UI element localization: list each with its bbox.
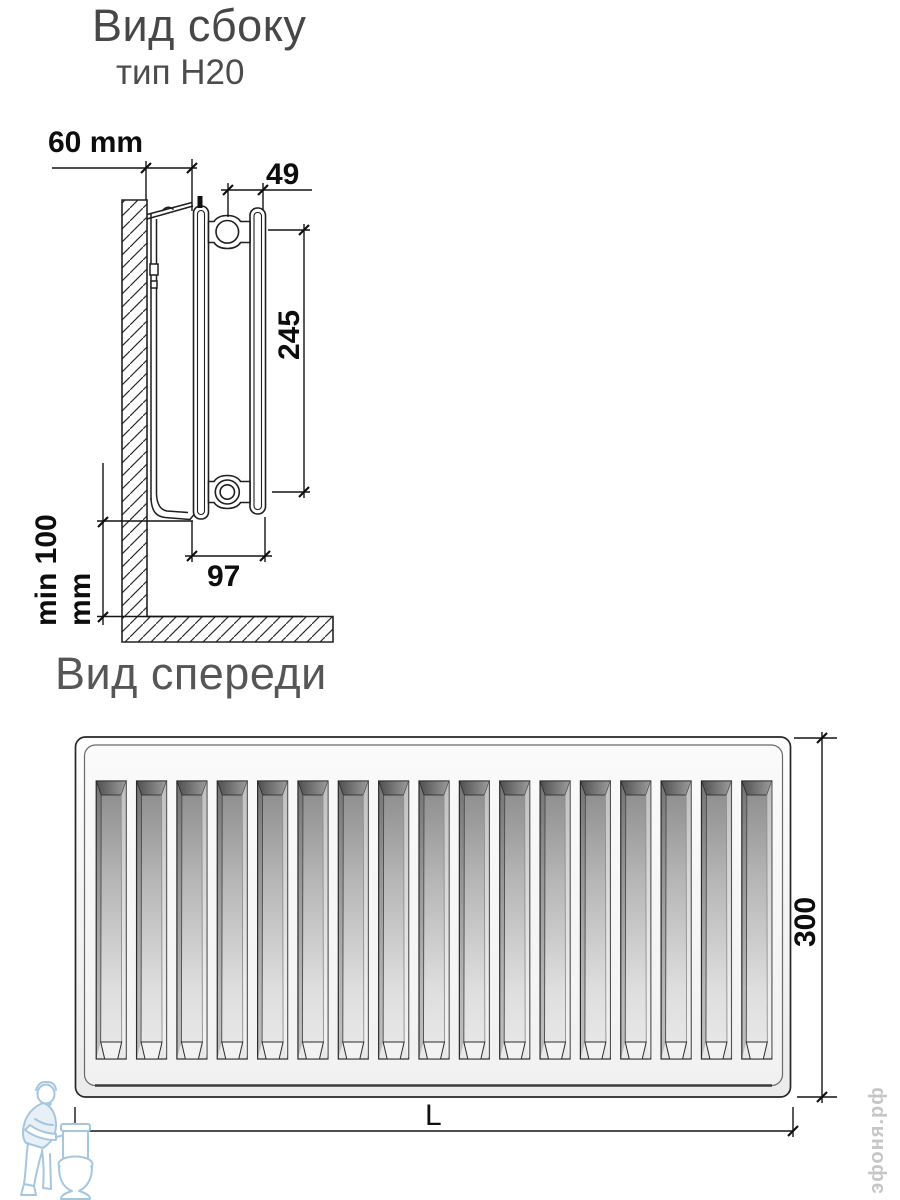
- site-watermark: эфоня.рф: [865, 1081, 889, 1199]
- dim-length: L: [425, 1099, 442, 1133]
- drawing-canvas: [0, 0, 900, 1200]
- channel: [459, 781, 489, 1059]
- channel: [338, 781, 368, 1059]
- dim-depth: 97: [207, 560, 240, 594]
- channel: [661, 781, 691, 1059]
- channel: [96, 781, 126, 1059]
- channel: [379, 781, 409, 1059]
- plumber-with-toilet-icon: [21, 1082, 93, 1199]
- channel: [258, 781, 288, 1059]
- dim-panel-pitch: 49: [266, 158, 299, 192]
- front-view-panel: [76, 737, 791, 1097]
- radiator-channels: [96, 781, 772, 1059]
- channel: [177, 781, 207, 1059]
- channel: [137, 781, 167, 1059]
- dim-floor-clearance: min 100 mm: [49, 454, 79, 626]
- channel: [701, 781, 731, 1059]
- air-vent-pin: [198, 196, 203, 208]
- channel: [500, 781, 530, 1059]
- channel: [540, 781, 570, 1059]
- bottom-hub: [209, 476, 251, 509]
- channel: [742, 781, 772, 1059]
- channel: [580, 781, 610, 1059]
- channel: [621, 781, 651, 1059]
- channel: [419, 781, 449, 1059]
- wall-bracket: [147, 203, 197, 520]
- front-view-title: Вид спереди: [55, 648, 327, 700]
- side-view-title: Вид сбоку: [92, 0, 306, 52]
- channel: [298, 781, 328, 1059]
- radiator-technical-drawing: Вид сбоку тип H20 60 mm 49 245 min 100 m…: [0, 0, 900, 1200]
- top-hub: [209, 216, 251, 249]
- channel: [217, 781, 247, 1059]
- side-view-subtitle: тип H20: [116, 53, 244, 93]
- dim-bracket-span: 245: [275, 295, 305, 375]
- dim-height: 300: [791, 882, 821, 962]
- dim-wall-offset: 60 mm: [48, 126, 143, 160]
